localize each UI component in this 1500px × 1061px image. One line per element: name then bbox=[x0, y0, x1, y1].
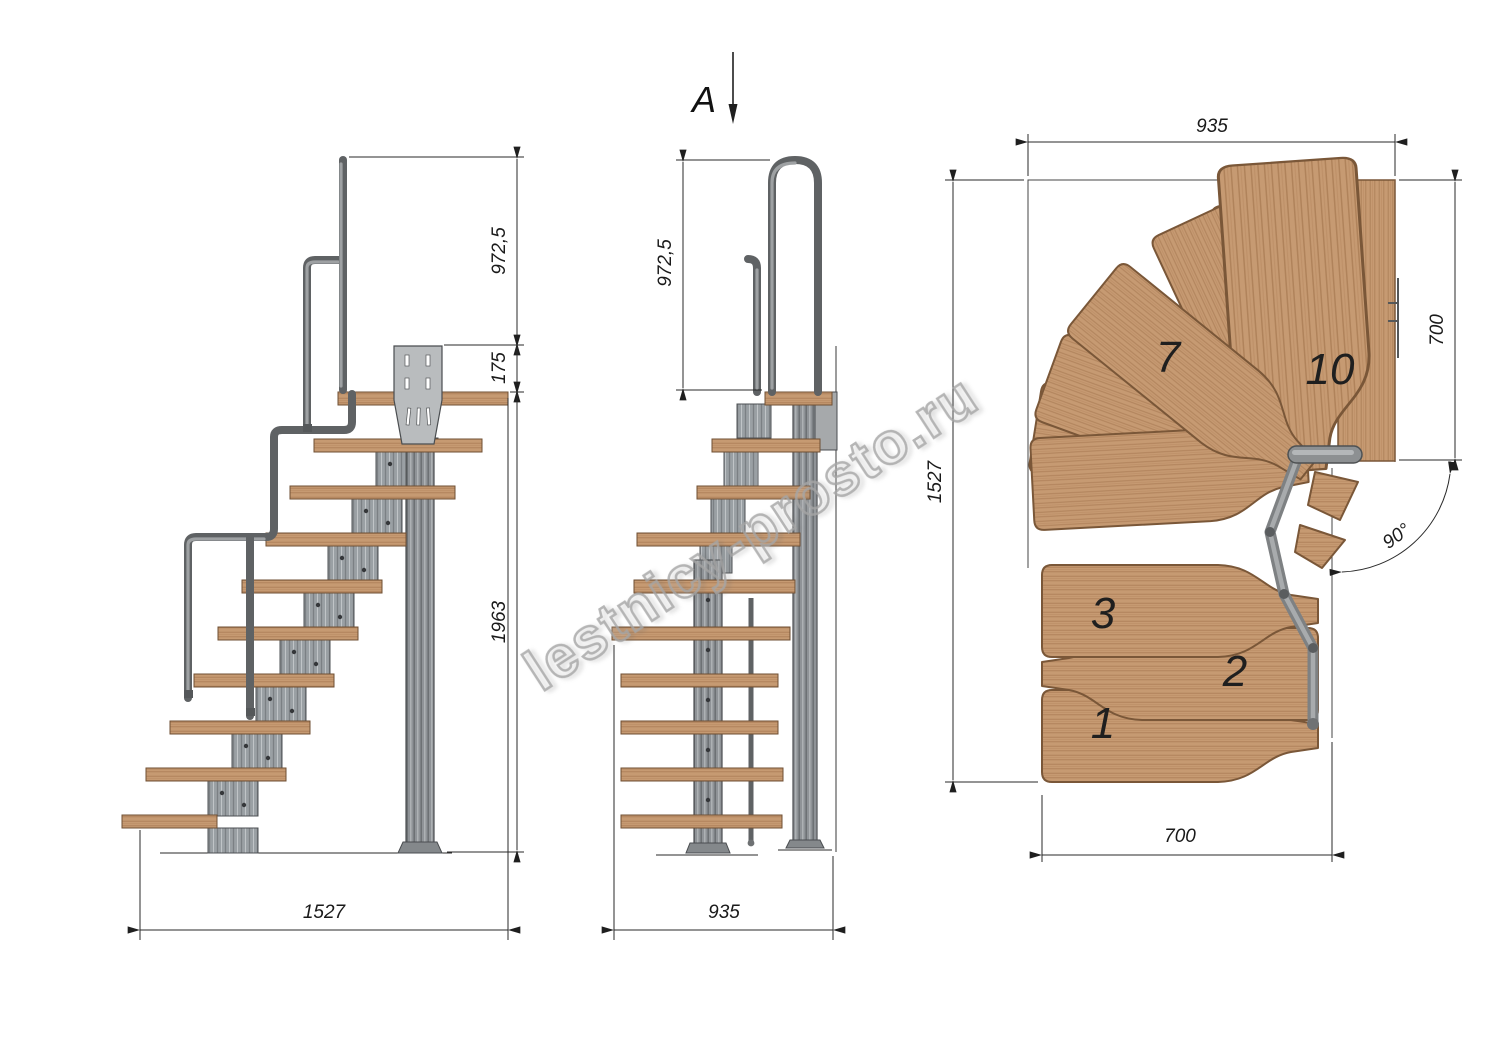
dim-plan-width-top: 935 bbox=[1196, 116, 1228, 137]
side-mounting-plate bbox=[394, 346, 442, 444]
section-arrow-icon bbox=[729, 104, 738, 124]
side-elevation-view: 972,5 175 1963 1527 bbox=[122, 157, 524, 940]
tread-label-7: 7 bbox=[1156, 333, 1182, 382]
plan-corner-wedge-2 bbox=[1295, 525, 1345, 568]
front-support-column bbox=[778, 392, 837, 850]
tread-label-1: 1 bbox=[1091, 699, 1115, 748]
plan-view: 7 10 3 2 1 935 1527 700 700 90° bbox=[925, 116, 1462, 862]
dim-side-platform-drop: 175 bbox=[489, 352, 510, 384]
dim-front-rail-height: 972,5 bbox=[655, 239, 676, 287]
plan-treads bbox=[1028, 157, 1377, 782]
front-loop-handrail bbox=[748, 160, 818, 392]
dim-plan-turn-angle: 90° bbox=[1379, 519, 1415, 553]
tread-label-3: 3 bbox=[1091, 589, 1116, 638]
dim-side-rail-height: 972,5 bbox=[489, 227, 510, 275]
front-elevation-view: A bbox=[612, 52, 837, 940]
dim-side-total-height: 1963 bbox=[489, 600, 510, 643]
side-support-column bbox=[398, 438, 442, 853]
dim-plan-width-bottom: 700 bbox=[1164, 826, 1196, 847]
tread-label-10: 10 bbox=[1306, 345, 1355, 394]
drawing-canvas: 972,5 175 1963 1527 A bbox=[0, 0, 1500, 1061]
side-step-modules bbox=[208, 452, 426, 853]
dim-side-total-run: 1527 bbox=[303, 902, 347, 923]
dim-front-width: 935 bbox=[708, 902, 740, 923]
staircase-technical-drawing: 972,5 175 1963 1527 A bbox=[0, 0, 1500, 1061]
plan-corner-wedge-1 bbox=[1308, 472, 1358, 520]
tread-label-2: 2 bbox=[1222, 647, 1247, 696]
dim-plan-landing-right: 700 bbox=[1427, 314, 1448, 346]
dim-plan-depth-left: 1527 bbox=[925, 459, 946, 503]
section-label: A bbox=[690, 79, 716, 120]
section-mark: A bbox=[690, 52, 738, 124]
